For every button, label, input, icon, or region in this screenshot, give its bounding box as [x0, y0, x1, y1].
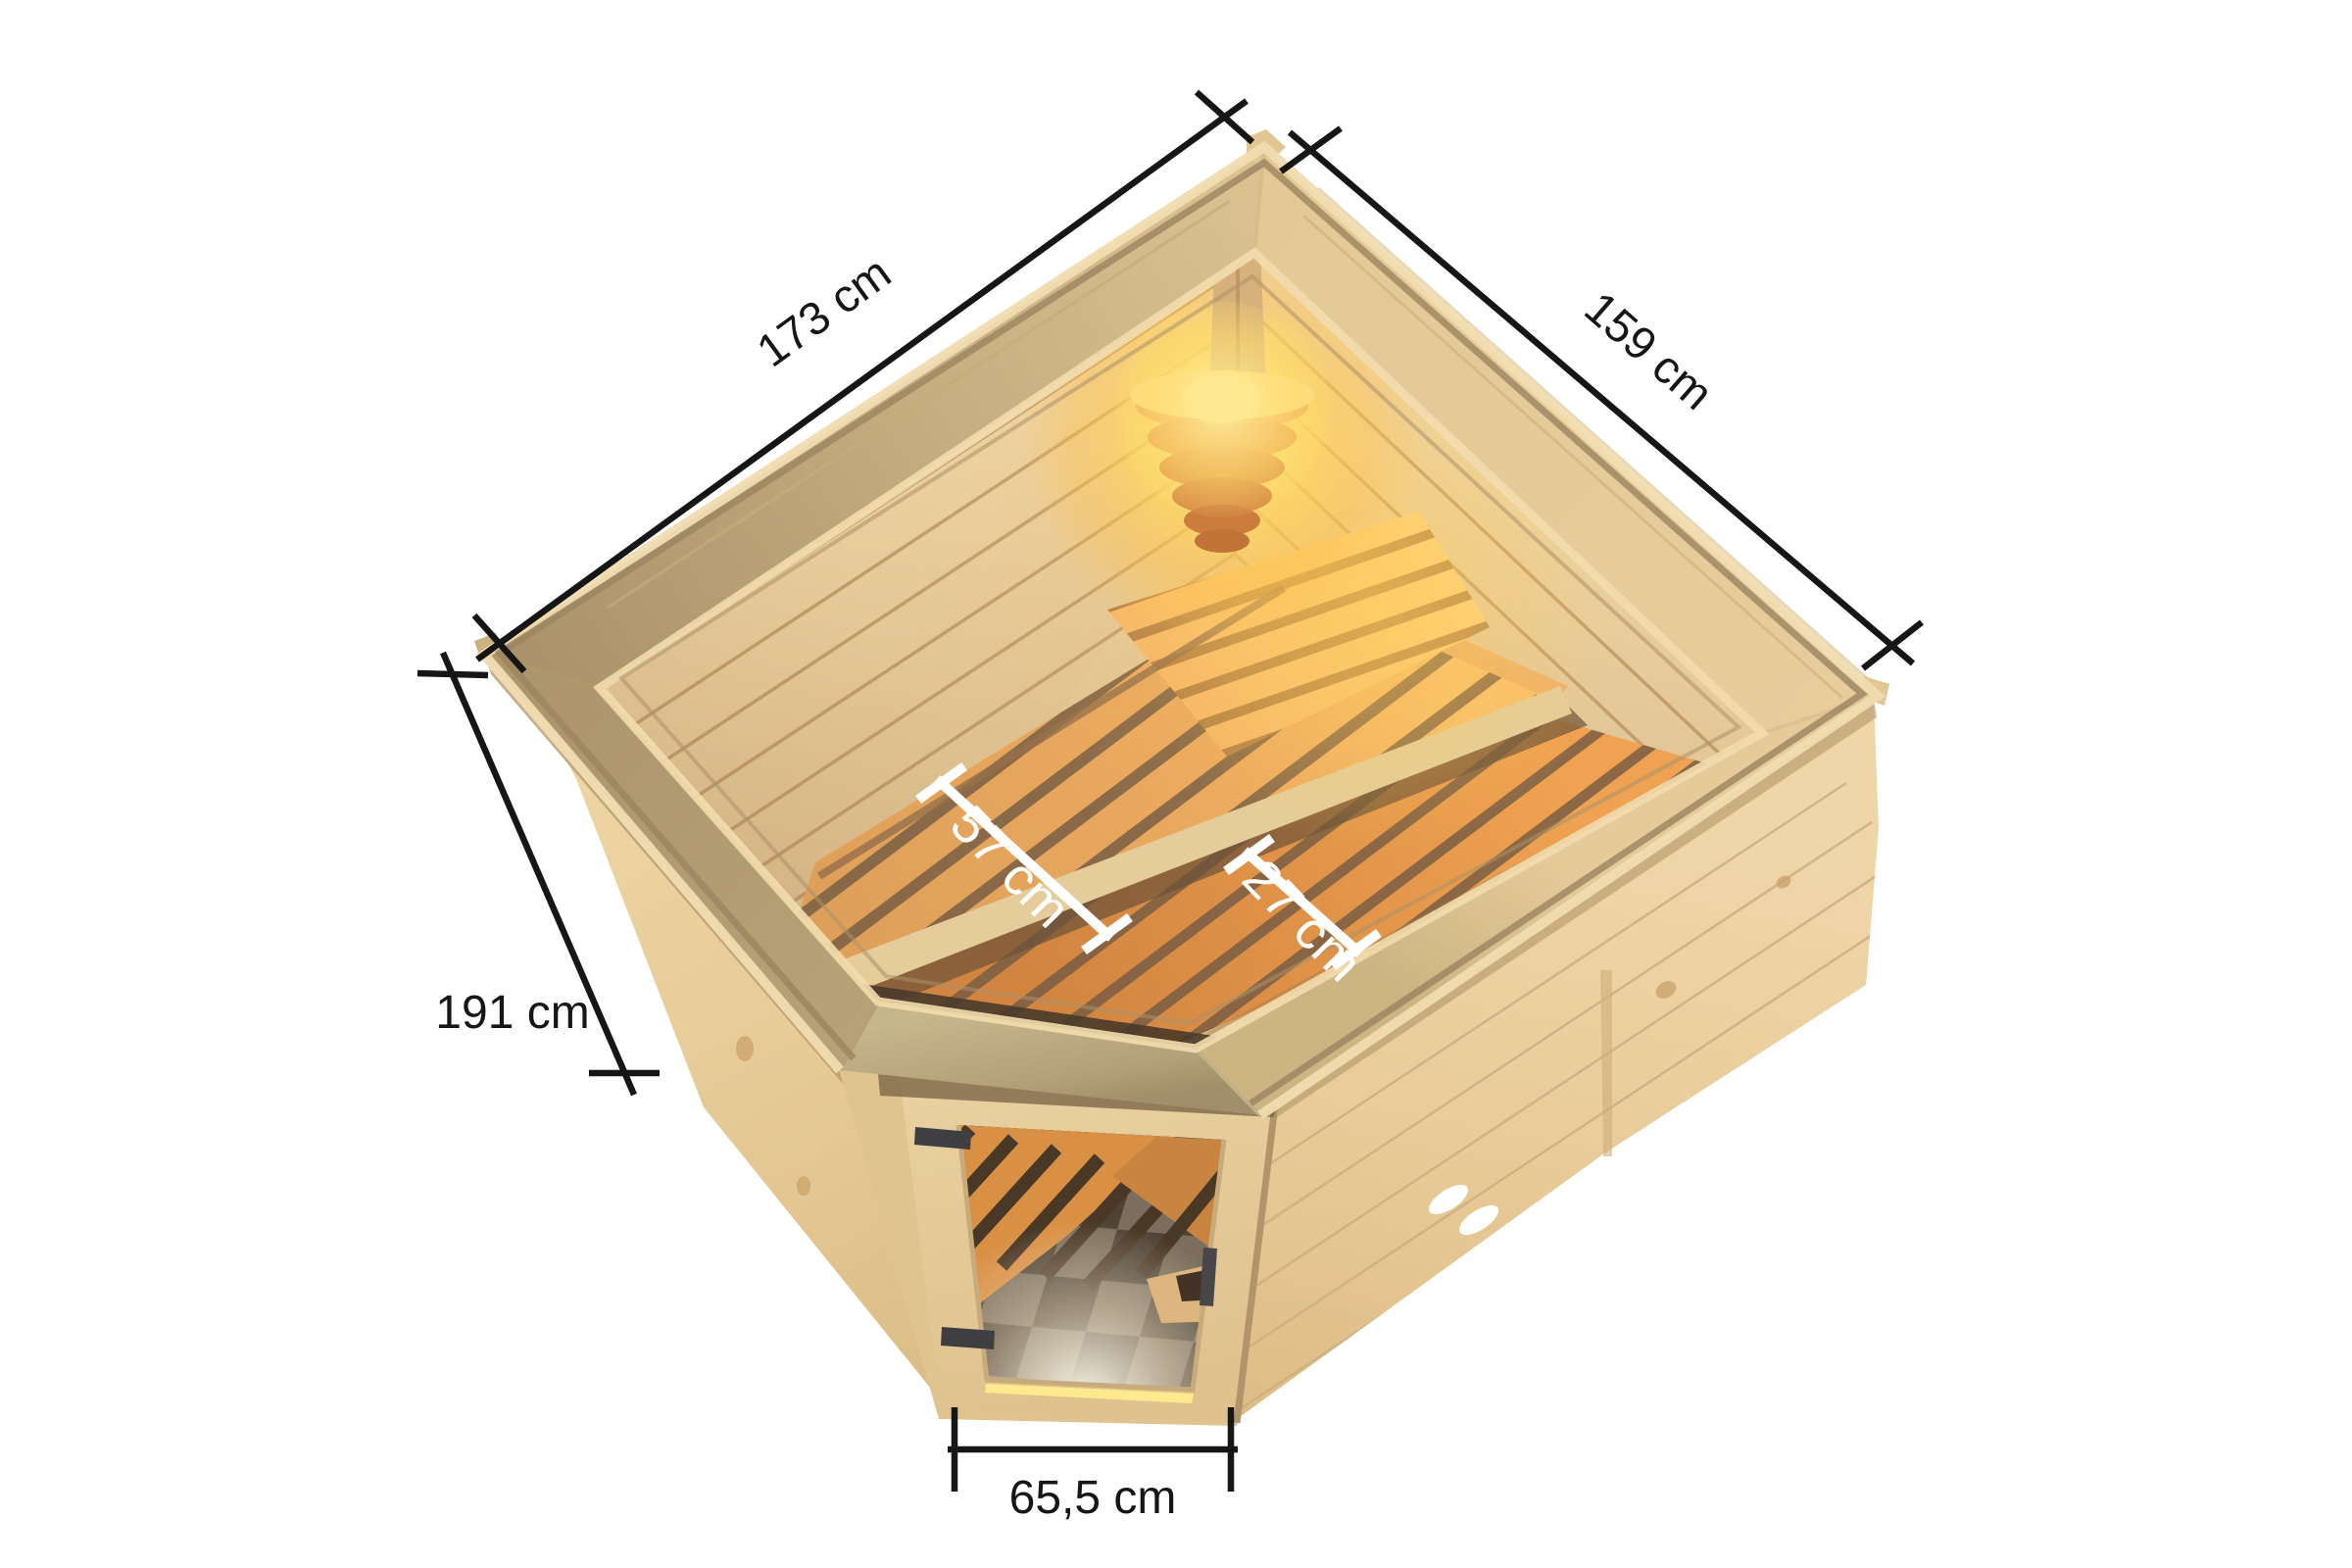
- svg-text:65,5 cm: 65,5 cm: [1009, 1472, 1177, 1524]
- svg-text:191 cm: 191 cm: [435, 987, 589, 1039]
